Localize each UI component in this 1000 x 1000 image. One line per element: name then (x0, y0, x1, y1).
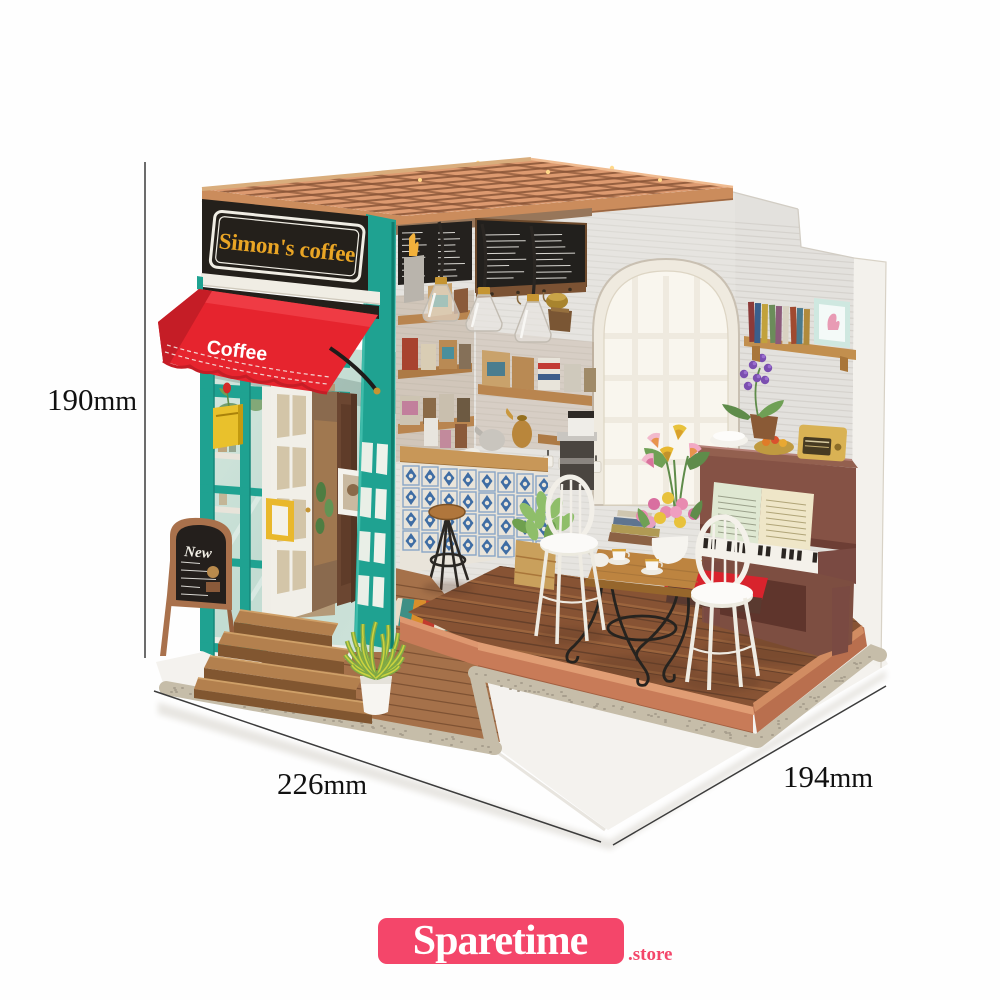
svg-text:194mm: 194mm (783, 759, 873, 794)
svg-text:Sparetime: Sparetime (413, 918, 588, 964)
svg-text:.store: .store (628, 944, 673, 965)
svg-text:190mm: 190mm (47, 382, 137, 417)
svg-text:226mm: 226mm (277, 766, 367, 801)
svg-text:New: New (183, 544, 214, 562)
